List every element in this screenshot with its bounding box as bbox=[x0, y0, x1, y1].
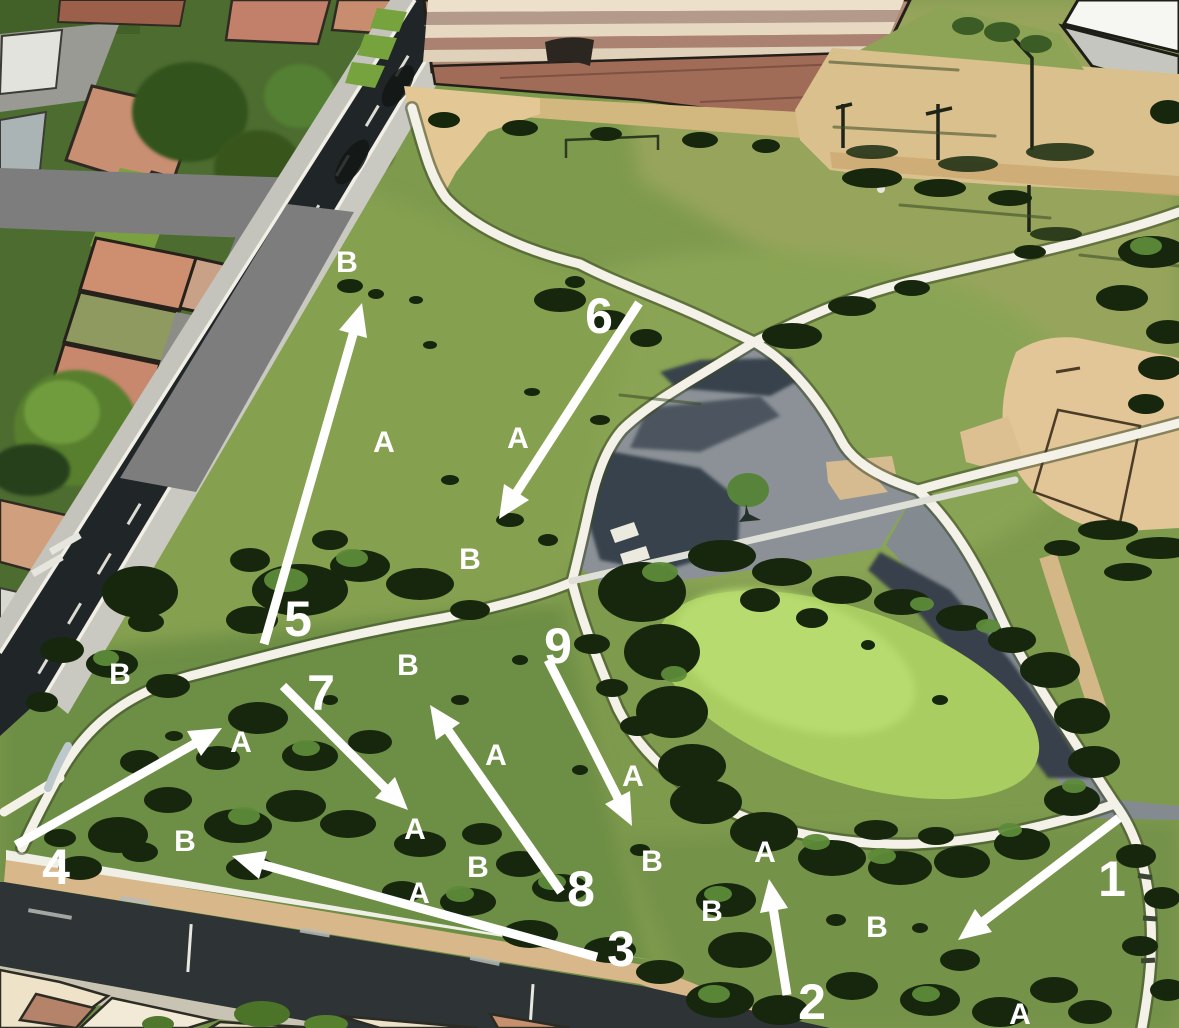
svg-text:B: B bbox=[397, 649, 419, 682]
svg-text:8: 8 bbox=[567, 861, 595, 917]
svg-text:2: 2 bbox=[798, 974, 826, 1028]
svg-text:A: A bbox=[230, 726, 252, 759]
svg-text:3: 3 bbox=[607, 921, 635, 977]
svg-text:A: A bbox=[754, 836, 776, 869]
svg-text:A: A bbox=[404, 813, 426, 846]
svg-text:9: 9 bbox=[544, 618, 572, 674]
svg-text:B: B bbox=[336, 246, 358, 279]
svg-text:B: B bbox=[641, 845, 663, 878]
svg-text:B: B bbox=[467, 851, 489, 884]
svg-text:B: B bbox=[174, 825, 196, 858]
svg-text:6: 6 bbox=[585, 288, 613, 344]
svg-text:1: 1 bbox=[1098, 851, 1126, 907]
svg-text:A: A bbox=[1009, 998, 1031, 1028]
svg-text:A: A bbox=[408, 877, 430, 910]
svg-text:4: 4 bbox=[42, 839, 70, 895]
svg-text:B: B bbox=[109, 658, 131, 691]
svg-text:7: 7 bbox=[307, 665, 335, 721]
svg-text:B: B bbox=[866, 911, 888, 944]
svg-text:5: 5 bbox=[284, 591, 312, 647]
svg-text:A: A bbox=[622, 760, 644, 793]
svg-text:B: B bbox=[701, 895, 723, 928]
svg-text:A: A bbox=[485, 739, 507, 772]
svg-text:B: B bbox=[459, 543, 481, 576]
svg-text:A: A bbox=[507, 422, 529, 455]
svg-text:A: A bbox=[373, 426, 395, 459]
